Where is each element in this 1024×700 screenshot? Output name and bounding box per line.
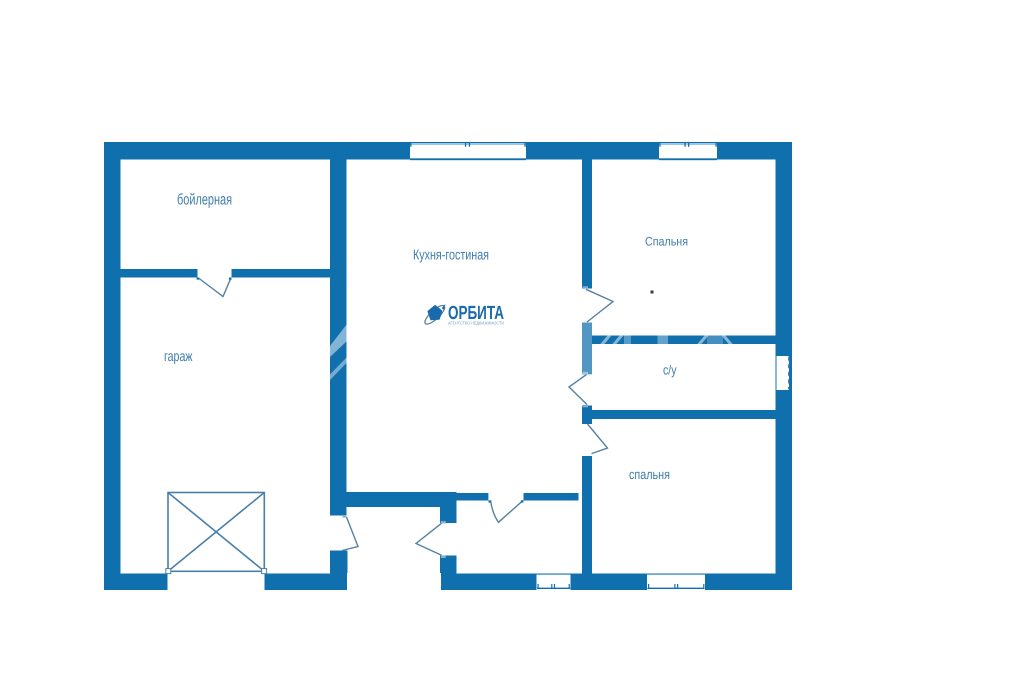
svg-text:гараж: гараж	[164, 349, 193, 365]
svg-text:с/у: с/у	[663, 362, 677, 377]
svg-text:бойлерная: бойлерная	[177, 192, 232, 209]
svg-text:Кухня-гостиная: Кухня-гостиная	[413, 247, 489, 263]
svg-text:Спальня: Спальня	[645, 234, 688, 248]
svg-text:АГЕНТСТВО НЕДВИЖИМОСТИ: АГЕНТСТВО НЕДВИЖИМОСТИ	[448, 320, 504, 325]
svg-text:спальня: спальня	[629, 467, 670, 482]
